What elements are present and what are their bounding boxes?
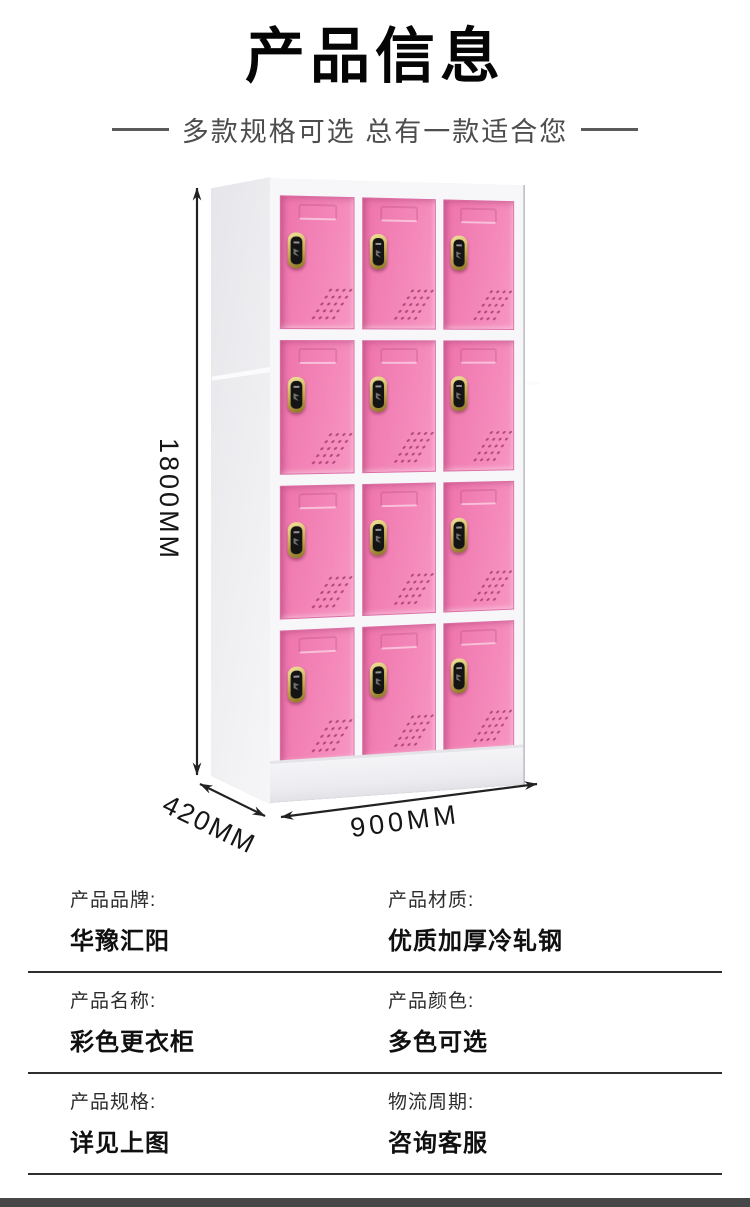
door-lock: [370, 519, 387, 555]
door-vent-holes: [469, 427, 517, 462]
door-lock: [450, 376, 467, 411]
door-lock: [288, 522, 306, 558]
spec-color-value: 多色可选: [388, 1022, 722, 1057]
spec-row-brand-material: 产品品牌: 华豫汇阳 产品材质: 优质加厚冷轧钢: [28, 872, 722, 973]
door-lock-face: [453, 239, 464, 266]
door-handle: [460, 488, 497, 504]
bottom-divider-bar: [0, 1198, 750, 1207]
locker-door: [443, 480, 514, 612]
locker-door: [443, 341, 514, 472]
spec-material-label: 产品材质:: [388, 885, 722, 912]
door-vent-holes: [389, 570, 438, 607]
door-vent-holes: [469, 567, 517, 604]
subtitle: 多款规格可选 总有一款适合您: [0, 110, 750, 149]
page: 产品信息 多款规格可选 总有一款适合您 1800MM 420MM 900MM: [0, 0, 750, 1207]
door-handle: [298, 348, 337, 364]
spec-name-label: 产品名称:: [70, 986, 388, 1013]
door-handle: [460, 348, 497, 364]
door-lock: [288, 232, 306, 268]
door-lock-face: [291, 670, 303, 699]
spec-name-value: 彩色更衣柜: [70, 1022, 388, 1057]
spec-size-value: 详见上图: [70, 1123, 388, 1158]
door-vent-holes: [389, 428, 438, 464]
door-lock-face: [373, 666, 384, 694]
door-handle: [380, 632, 418, 649]
door-vent-holes: [307, 573, 358, 611]
locker-door: [280, 195, 355, 329]
door-vent-holes: [469, 706, 517, 744]
door-lock-face: [291, 236, 303, 264]
door-lock: [450, 235, 467, 270]
height-dimension-label: 1800MM: [153, 438, 184, 561]
door-handle: [380, 490, 418, 507]
spec-size: 产品规格: 详见上图: [28, 1087, 388, 1158]
door-handle: [380, 206, 418, 223]
door-lock: [370, 234, 387, 270]
spec-row-name-color: 产品名称: 彩色更衣柜 产品颜色: 多色可选: [28, 973, 722, 1074]
page-title: 产品信息: [0, 0, 750, 90]
spec-logistics: 物流周期: 咨询客服: [388, 1087, 722, 1158]
door-vent-holes: [389, 711, 438, 749]
locker-door: [362, 623, 435, 759]
door-lock: [450, 658, 467, 694]
locker-door: [362, 197, 435, 330]
specs-table: 产品品牌: 华豫汇阳 产品材质: 优质加厚冷轧钢 产品名称: 彩色更衣柜 产品颜…: [28, 872, 722, 1175]
locker-figure: 1800MM 420MM 900MM: [0, 155, 750, 860]
subtitle-right-line: [581, 128, 638, 131]
spec-row-size-logistics: 产品规格: 详见上图 物流周期: 咨询客服: [28, 1074, 722, 1175]
spec-size-label: 产品规格:: [70, 1087, 388, 1114]
door-handle: [298, 636, 337, 654]
width-dimension-label: 900MM: [319, 795, 492, 848]
spec-logistics-value: 咨询客服: [388, 1123, 722, 1158]
door-vent-holes: [389, 287, 438, 322]
spec-brand-label: 产品品牌:: [70, 885, 388, 912]
door-lock-face: [453, 662, 464, 690]
door-lock: [370, 377, 387, 412]
depth-dimension-label: 420MM: [157, 789, 260, 861]
door-handle: [460, 628, 497, 645]
subtitle-text: 多款规格可选 总有一款适合您: [182, 110, 569, 149]
door-vent-holes: [307, 286, 358, 322]
door-handle: [460, 208, 497, 224]
locker-door: [443, 620, 514, 754]
spec-name: 产品名称: 彩色更衣柜: [28, 986, 388, 1057]
door-lock: [288, 666, 306, 703]
door-vent-holes: [469, 288, 517, 323]
spec-brand: 产品品牌: 华豫汇阳: [28, 885, 388, 956]
locker-door: [280, 484, 355, 620]
door-handle: [298, 492, 337, 509]
spec-material: 产品材质: 优质加厚冷轧钢: [388, 885, 722, 956]
locker-door: [362, 340, 435, 472]
locker-side-panel: [211, 177, 271, 805]
door-lock-face: [291, 526, 303, 554]
subtitle-left-line: [112, 128, 169, 131]
door-lock-face: [373, 381, 384, 409]
spec-color: 产品颜色: 多色可选: [388, 986, 722, 1057]
locker-door: [280, 340, 355, 474]
door-lock: [288, 377, 306, 413]
spec-material-value: 优质加厚冷轧钢: [388, 921, 722, 956]
door-lock-face: [453, 521, 464, 548]
door-lock-face: [373, 238, 384, 266]
locker-door: [362, 482, 435, 616]
door-lock: [450, 517, 467, 552]
door-handle: [298, 204, 337, 221]
door-lock-face: [291, 381, 303, 409]
spec-color-label: 产品颜色:: [388, 986, 722, 1013]
door-vent-holes: [307, 429, 358, 465]
locker-door: [443, 199, 514, 330]
locker-door-grid: [280, 195, 514, 764]
door-lock-face: [373, 523, 384, 551]
locker-door: [280, 627, 355, 764]
spec-brand-value: 华豫汇阳: [70, 921, 388, 956]
door-lock-face: [453, 380, 464, 407]
spec-logistics-label: 物流周期:: [388, 1087, 722, 1114]
door-vent-holes: [307, 716, 358, 755]
locker-front: [270, 178, 525, 803]
door-lock: [370, 662, 387, 698]
door-handle: [380, 348, 418, 364]
